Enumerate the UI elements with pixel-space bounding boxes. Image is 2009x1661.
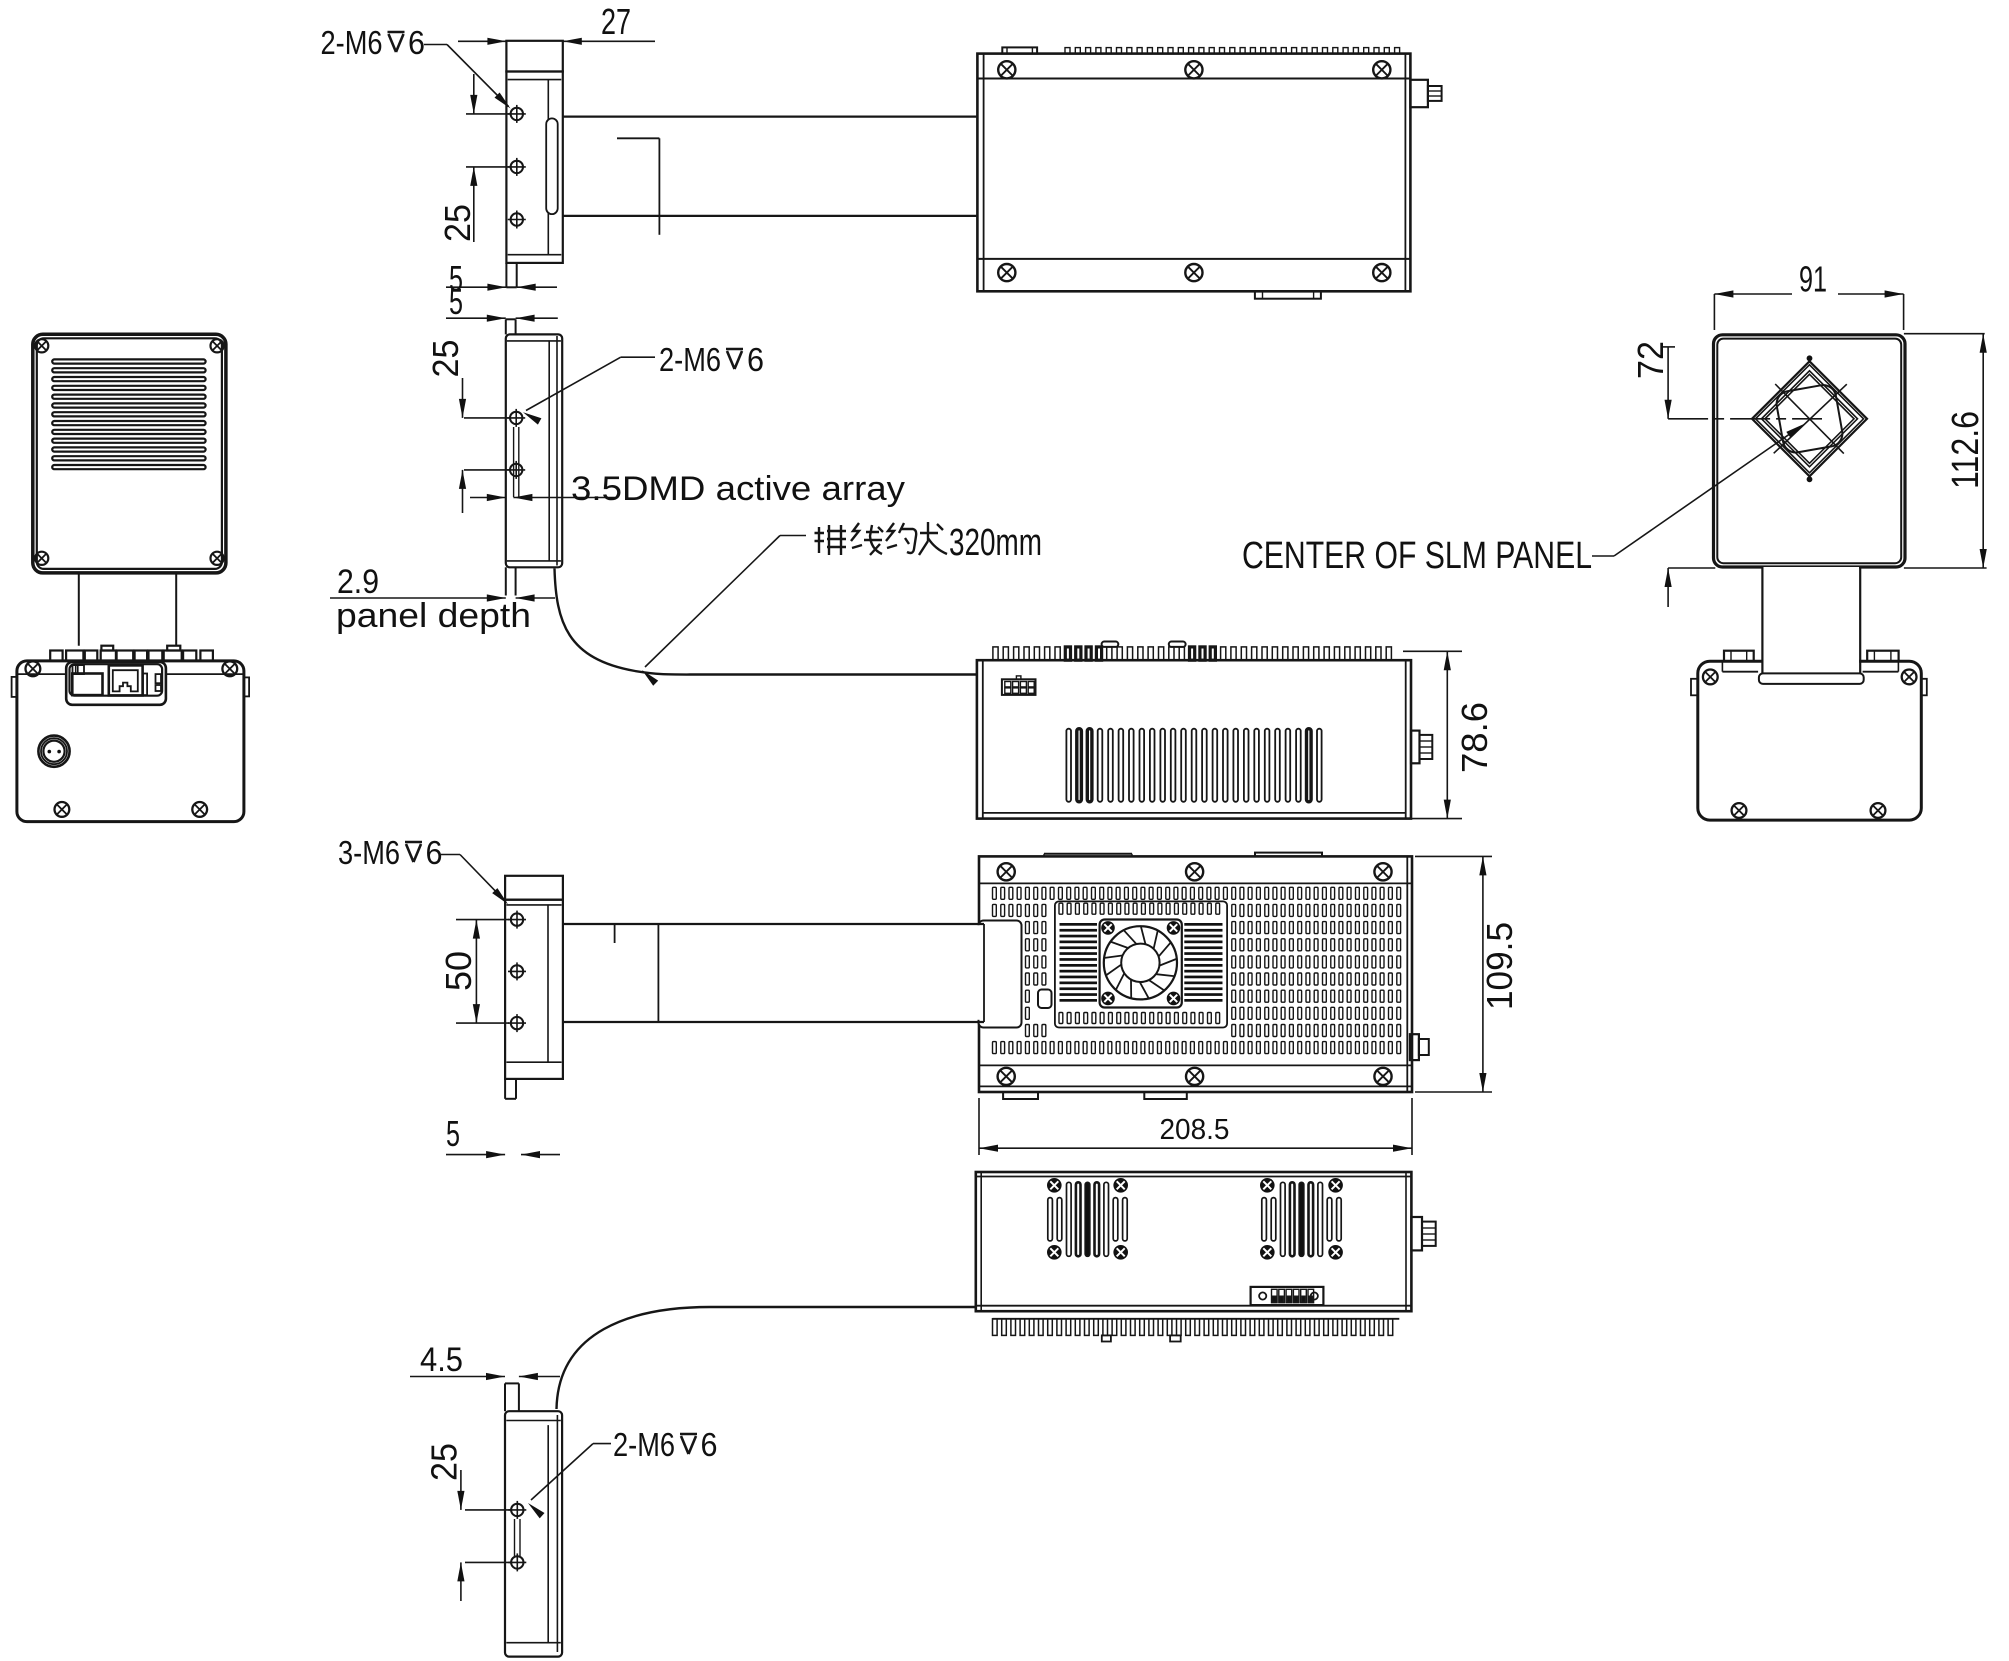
svg-text:112.6: 112.6 <box>1945 411 1987 489</box>
svg-text:91: 91 <box>1799 259 1827 300</box>
svg-text:72: 72 <box>1630 341 1671 379</box>
svg-text:5: 5 <box>449 281 463 322</box>
svg-text:6: 6 <box>408 24 425 61</box>
svg-text:25: 25 <box>437 204 478 242</box>
svg-text:27: 27 <box>601 1 631 42</box>
svg-text:6: 6 <box>426 834 443 871</box>
svg-text:208.5: 208.5 <box>1160 1114 1230 1146</box>
svg-text:2-M6: 2-M6 <box>321 24 383 61</box>
svg-text:320mm: 320mm <box>949 522 1042 564</box>
svg-text:2.9: 2.9 <box>337 563 379 601</box>
svg-text:5: 5 <box>446 1113 460 1154</box>
svg-text:78.6: 78.6 <box>1454 702 1495 773</box>
svg-text:25: 25 <box>424 1443 465 1481</box>
svg-text:3-M6: 3-M6 <box>338 834 400 871</box>
svg-text:2-M6: 2-M6 <box>613 1426 675 1463</box>
svg-text:panel depth: panel depth <box>336 597 531 635</box>
svg-text:4.5: 4.5 <box>420 1341 463 1379</box>
svg-text:25: 25 <box>425 340 466 378</box>
svg-text:109.5: 109.5 <box>1479 922 1520 1010</box>
svg-text:50: 50 <box>438 951 479 991</box>
svg-text:2-M6: 2-M6 <box>659 341 721 378</box>
svg-text:3.5DMD active array: 3.5DMD active array <box>571 470 905 508</box>
svg-text:CENTER OF SLM PANEL: CENTER OF SLM PANEL <box>1242 535 1592 577</box>
svg-text:6: 6 <box>701 1426 718 1463</box>
svg-text:6: 6 <box>747 341 764 378</box>
